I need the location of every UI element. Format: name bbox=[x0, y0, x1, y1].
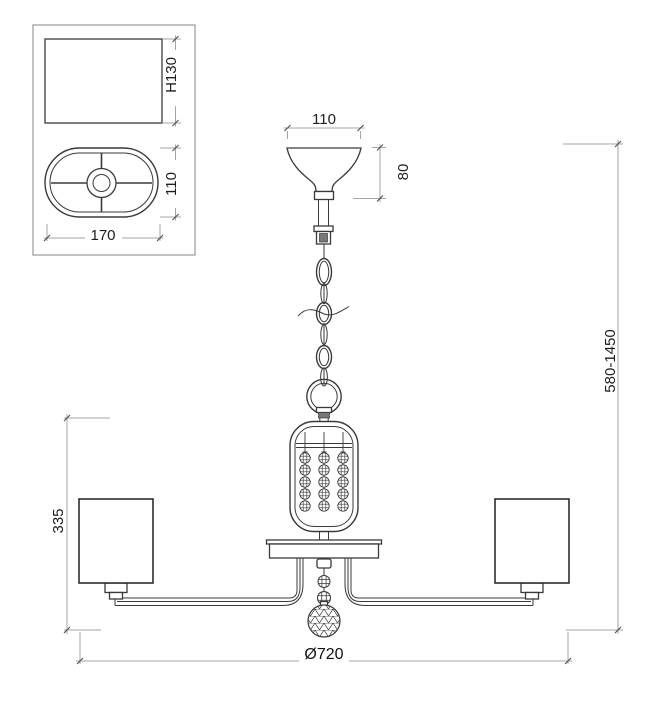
canopy-rod bbox=[319, 200, 329, 227]
ceiling-canopy bbox=[287, 148, 361, 244]
left-lampshade bbox=[79, 499, 153, 583]
dim-canopy-height: 80 bbox=[353, 144, 412, 202]
right-lampshade bbox=[495, 499, 569, 583]
crystal-drop bbox=[308, 559, 340, 637]
dim-shade-depth: 110 bbox=[160, 145, 181, 221]
dim-canopy-width: 110 bbox=[284, 111, 365, 139]
chain-break-symbol bbox=[298, 307, 349, 317]
suspension-chain bbox=[298, 244, 349, 386]
shade-width-label: 170 bbox=[90, 227, 115, 244]
shade-depth-label: 110 bbox=[163, 172, 180, 196]
left-socket bbox=[105, 583, 127, 593]
canopy-width-label: 110 bbox=[312, 111, 336, 128]
shade-height-label: H130 bbox=[163, 57, 180, 93]
dim-suspension-height: 580-1450 bbox=[563, 140, 623, 634]
dim-shade-height: H130 bbox=[163, 36, 181, 127]
shade-top-view bbox=[45, 148, 158, 217]
drawing-svg: H130 110 170 bbox=[0, 0, 662, 720]
crystal-bead-frame bbox=[290, 422, 358, 541]
right-socket bbox=[521, 583, 543, 593]
shade-front-view bbox=[45, 39, 162, 123]
body-height-label: 335 bbox=[50, 508, 67, 533]
centre-plate bbox=[267, 540, 382, 558]
diameter-label: Ø720 bbox=[304, 646, 343, 663]
dim-shade-width: 170 bbox=[44, 223, 164, 244]
chandelier-technical-drawing: H130 110 170 bbox=[0, 0, 662, 720]
crystal-beads bbox=[300, 453, 348, 511]
detail-view: H130 110 170 bbox=[33, 25, 195, 255]
suspension-height-label: 580-1450 bbox=[602, 329, 619, 392]
canopy-height-label: 80 bbox=[395, 164, 412, 181]
crystal-ball bbox=[308, 605, 340, 637]
